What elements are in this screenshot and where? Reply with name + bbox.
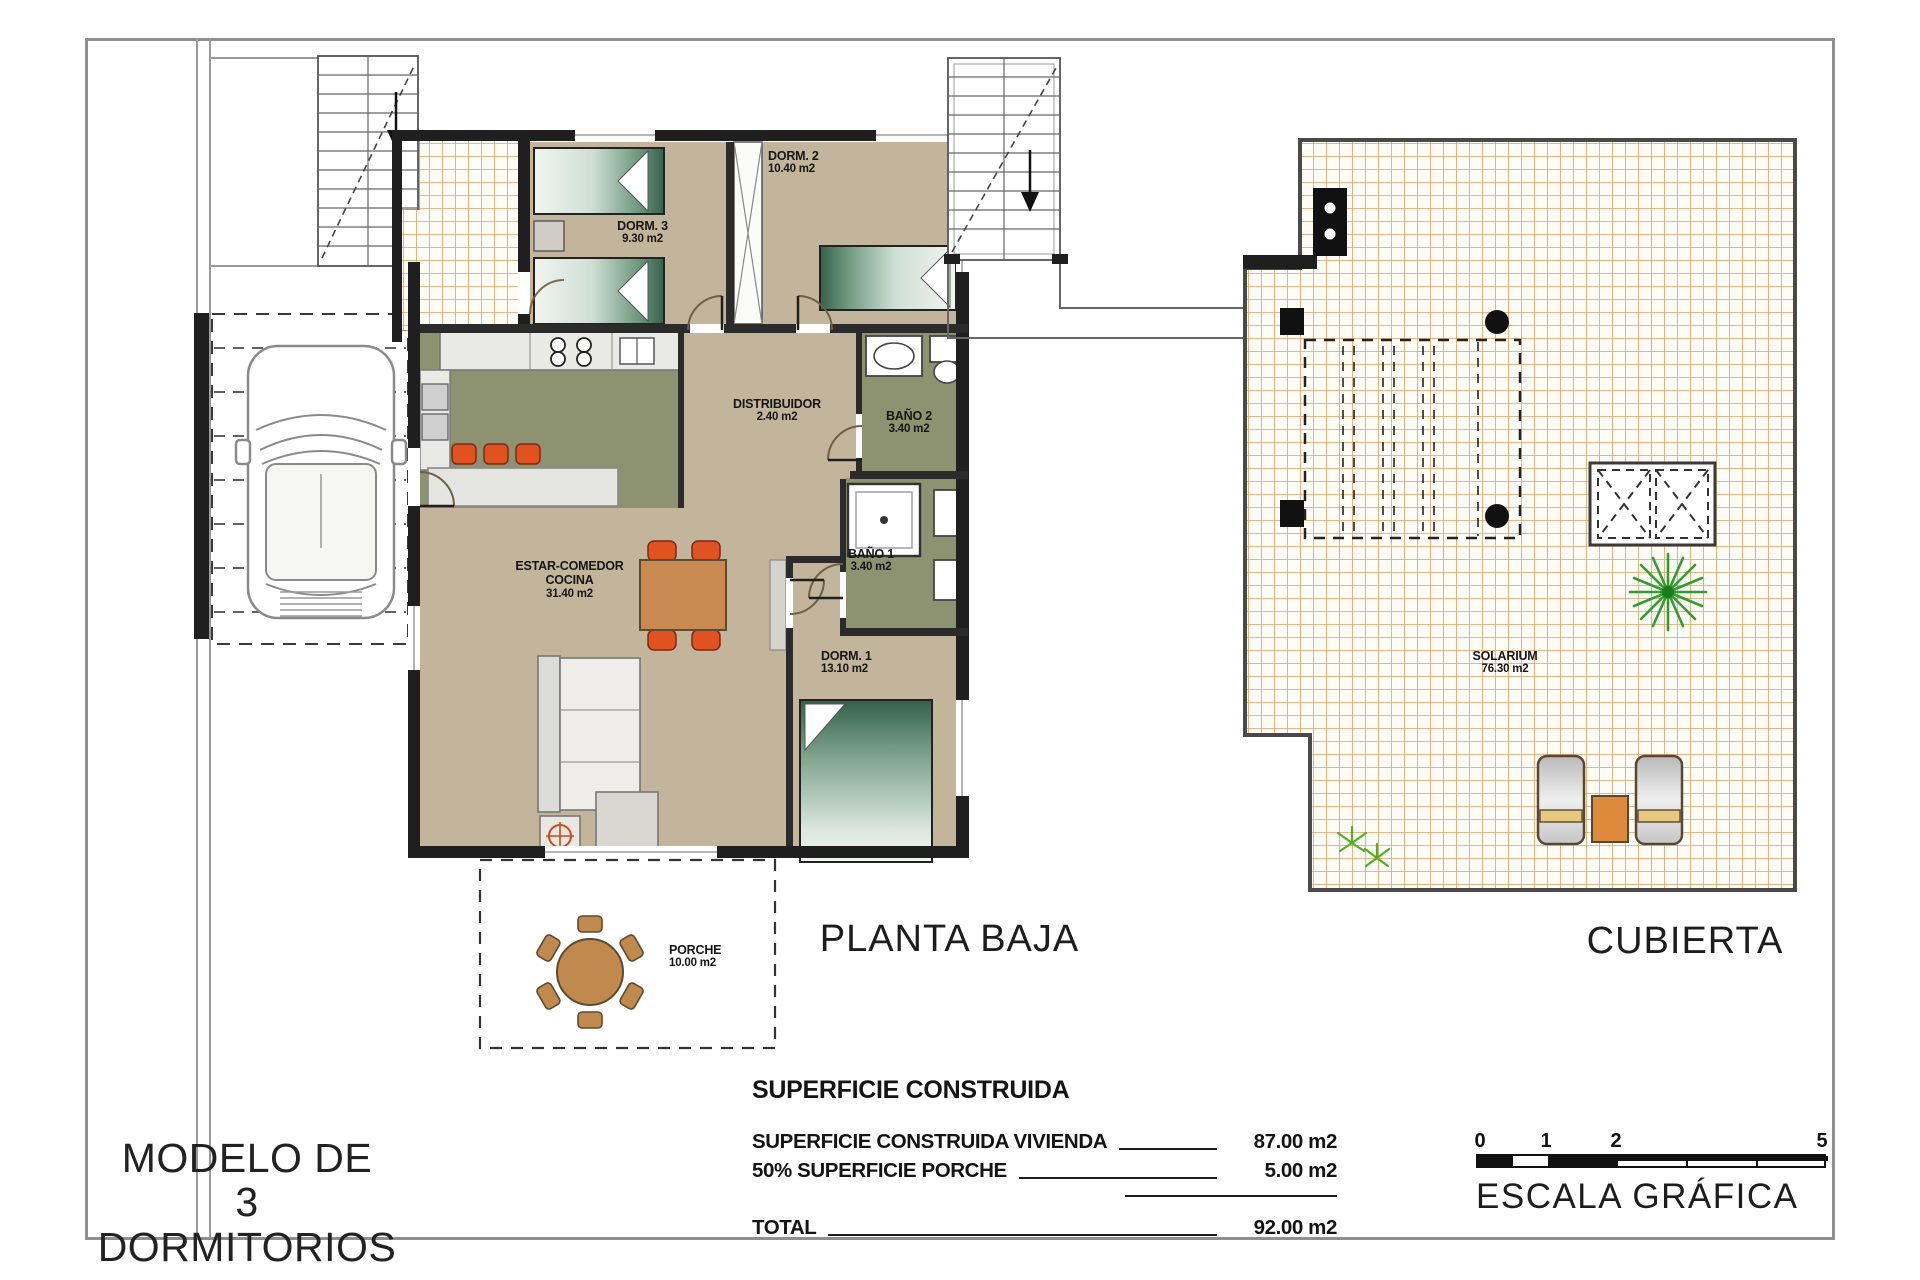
room-label-bano1: BAÑO 1 3.40 m2 bbox=[827, 547, 915, 574]
wall-stub bbox=[1280, 308, 1304, 335]
room-label-dorm3: DORM. 3 9.30 m2 bbox=[585, 219, 700, 246]
staircase-right bbox=[944, 58, 1245, 338]
room-label-dorm2: DORM. 2 10.40 m2 bbox=[768, 149, 863, 176]
bed-dorm3-2 bbox=[534, 258, 664, 324]
leader-line bbox=[1019, 1177, 1217, 1179]
bar-stools bbox=[452, 444, 540, 464]
nightstand-dorm3 bbox=[534, 221, 564, 251]
column-dot bbox=[1485, 504, 1509, 528]
coffee-table-icon bbox=[596, 792, 658, 852]
room-label-porche: PORCHE 10.00 m2 bbox=[669, 943, 764, 970]
cubierta-title: CUBIERTA bbox=[1570, 920, 1800, 963]
car-icon bbox=[236, 346, 406, 618]
roof-side-table-icon bbox=[1592, 796, 1628, 842]
subtotal-rule bbox=[1125, 1195, 1337, 1197]
leader-line bbox=[1119, 1148, 1217, 1150]
wardrobe-icon bbox=[734, 142, 762, 324]
bed-dorm1 bbox=[800, 700, 932, 862]
summary-total-row: TOTAL 92.00 m2 bbox=[752, 1211, 1337, 1240]
scale-bar bbox=[1476, 1154, 1826, 1168]
summary-row: 50% SUPERFICIE PORCHE 5.00 m2 bbox=[752, 1154, 1337, 1183]
washbasin-icon bbox=[866, 336, 922, 376]
sofa-icon bbox=[538, 656, 640, 812]
room-label-bano2: BAÑO 2 3.40 m2 bbox=[863, 409, 955, 436]
shower-icon bbox=[848, 484, 920, 556]
scale-tick-labels: 0 1 2 5 bbox=[1476, 1130, 1836, 1154]
chimney-icon bbox=[1313, 188, 1347, 256]
room-label-dorm1: DORM. 1 13.10 m2 bbox=[821, 649, 913, 676]
summary-header: SUPERFICIE CONSTRUIDA bbox=[752, 1076, 1337, 1105]
graphic-scale: 0 1 2 5 ESCALA GRÁFICA bbox=[1476, 1130, 1836, 1217]
room-label-solarium: SOLARIUM 76.30 m2 bbox=[1452, 649, 1558, 676]
boundary-wall-segment bbox=[194, 313, 209, 639]
scale-label: ESCALA GRÁFICA bbox=[1476, 1177, 1836, 1217]
planta-baja-title: PLANTA BAJA bbox=[812, 918, 1087, 961]
roof-terrace bbox=[1243, 140, 1795, 890]
wall-stub bbox=[1280, 500, 1304, 527]
porch-table-icon bbox=[536, 916, 645, 1028]
column-dot bbox=[1485, 310, 1509, 334]
island-counter bbox=[428, 468, 618, 506]
tree-icon bbox=[1630, 554, 1706, 630]
bathroom2-fixtures bbox=[866, 336, 964, 383]
room-label-estar-comedor: ESTAR-COMEDOR COCINA 31.40 m2 bbox=[497, 559, 642, 601]
tv-unit bbox=[770, 560, 786, 650]
drawing-sheet: DORM. 3 9.30 m2 DORM. 2 10.40 m2 DISTRIB… bbox=[0, 0, 1920, 1280]
model-title: MODELO DE 3 DORMITORIOS bbox=[92, 1136, 402, 1269]
sink-icon bbox=[620, 338, 654, 364]
site-boundary-lines bbox=[197, 38, 318, 1238]
leader-line bbox=[828, 1234, 1217, 1236]
bed-dorm3-1 bbox=[534, 148, 664, 214]
summary-row: SUPERFICIE CONSTRUIDA VIVIENDA 87.00 m2 bbox=[752, 1125, 1337, 1154]
surface-summary: SUPERFICIE CONSTRUIDA SUPERFICIE CONSTRU… bbox=[752, 1076, 1337, 1240]
room-label-distribuidor: DISTRIBUIDOR 2.40 m2 bbox=[697, 397, 857, 424]
skylight-icon bbox=[1590, 463, 1715, 545]
bed-dorm2 bbox=[820, 246, 956, 310]
